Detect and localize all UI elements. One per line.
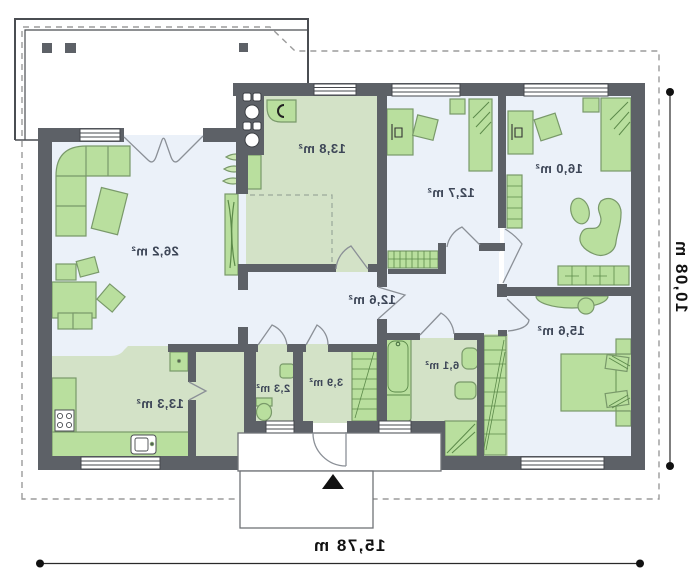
svg-text:2,3 m²: 2,3 m² (256, 383, 290, 395)
svg-text:15,6 m²: 15,6 m² (537, 323, 585, 338)
svg-text:10,08 m: 10,08 m (672, 240, 691, 313)
svg-text:16,0 m²: 16,0 m² (535, 161, 583, 176)
svg-text:13,8 m²: 13,8 m² (298, 141, 346, 156)
svg-text:6,1 m²: 6,1 m² (425, 360, 459, 372)
svg-text:15,78 m: 15,78 m (313, 536, 386, 555)
svg-text:26,2 m²: 26,2 m² (131, 244, 179, 259)
svg-text:13,3 m²: 13,3 m² (136, 396, 184, 411)
svg-text:3,9 m²: 3,9 m² (309, 377, 343, 389)
svg-text:12,6 m²: 12,6 m² (348, 292, 396, 307)
svg-text:12,7 m²: 12,7 m² (427, 185, 475, 200)
